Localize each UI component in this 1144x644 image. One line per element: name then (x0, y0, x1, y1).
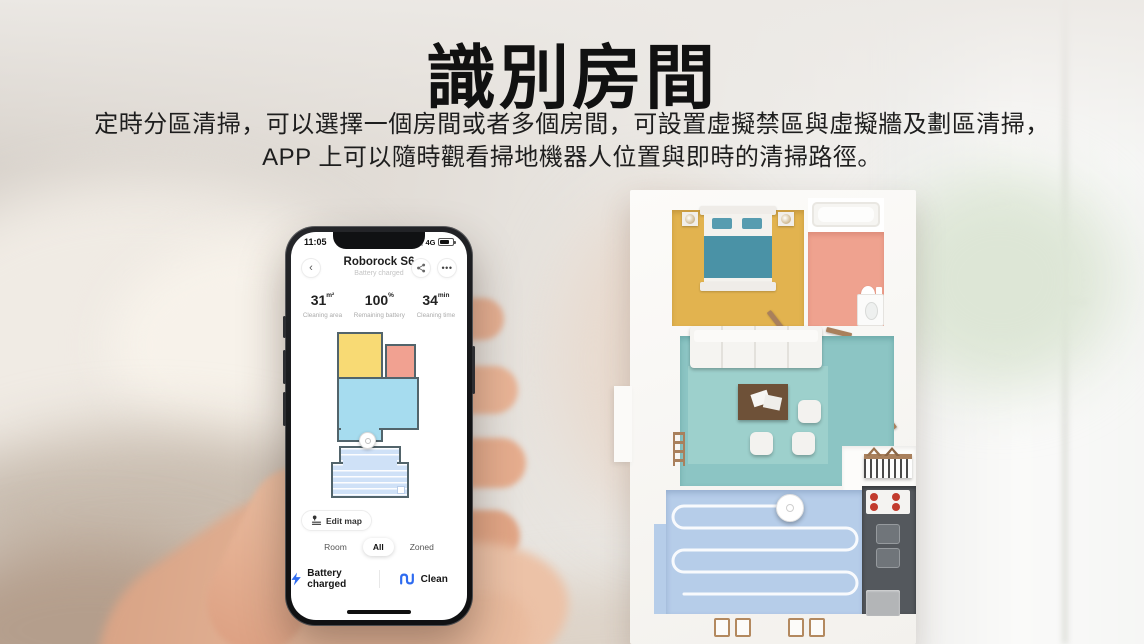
edit-map-icon (311, 515, 322, 526)
clean-button[interactable]: Clean (380, 566, 468, 592)
network-label: 4G (425, 238, 435, 247)
stat-unit: % (388, 292, 394, 299)
tab-all[interactable]: All (363, 538, 394, 556)
floor-plan-illustration (630, 190, 916, 644)
phone-volume-up (283, 350, 286, 384)
lightning-icon (291, 572, 301, 586)
plan-stove (866, 490, 910, 514)
phone-mute-switch (283, 316, 286, 338)
plan-nightstand-right (778, 212, 794, 226)
plan-bathtub (812, 202, 880, 227)
map-dock-marker (397, 486, 405, 494)
app-header: ‹ Roborock S6 Battery charged ••• (291, 256, 467, 288)
page-subtitle: 定時分區清掃，可以選擇一個房間或者多個房間，可設置虛擬禁區與虛擬牆及劃區清掃， … (0, 108, 1144, 174)
battery-status: Battery charged (291, 566, 379, 592)
phone-volume-down (283, 392, 286, 426)
bottom-action-bar: Battery charged Clean (291, 566, 467, 592)
home-indicator[interactable] (347, 610, 411, 614)
edit-map-label: Edit map (326, 516, 362, 526)
plan-pouf (750, 432, 773, 455)
plan-wall-nook (614, 386, 632, 462)
cleaning-path (666, 490, 864, 614)
phone-screen: 11:05 4G ‹ Roborock S6 Battery charged •… (291, 232, 467, 620)
edit-map-button[interactable]: Edit map (301, 510, 372, 531)
robot-map[interactable] (295, 324, 463, 506)
plan-bathroom (808, 198, 884, 326)
map-robot-marker (359, 432, 376, 449)
stat-value: 100 (365, 292, 388, 308)
map-room-yellow[interactable] (337, 332, 383, 379)
battery-status-label: Battery charged (307, 568, 378, 590)
tab-zoned[interactable]: Zoned (410, 542, 434, 552)
phone-notch (333, 232, 425, 249)
plan-coffee-table (738, 384, 788, 420)
stat-unit: m² (326, 292, 334, 299)
map-room-seam (341, 424, 379, 432)
plan-chairs-right (788, 618, 826, 638)
plan-ladder-decor (673, 432, 685, 466)
map-room-blue[interactable] (337, 377, 419, 430)
plan-pouf (792, 432, 815, 455)
stat-label: Remaining battery (354, 312, 405, 319)
stat-remaining-battery: 100% Remaining battery (354, 292, 405, 319)
plan-chairs-left (714, 618, 752, 638)
status-time: 11:05 (304, 237, 327, 247)
subtitle-line-2: APP 上可以隨時觀看掃地機器人位置與即時的清掃路徑。 (262, 144, 882, 171)
battery-icon (438, 238, 454, 246)
tab-room[interactable]: Room (324, 542, 347, 552)
plan-bathroom-floor (808, 232, 884, 326)
share-icon (416, 263, 426, 273)
plan-bedroom (672, 210, 804, 326)
plan-pouf (798, 400, 821, 423)
plan-sink (857, 294, 884, 326)
plan-sofa (690, 326, 822, 368)
subtitle-line-1: 定時分區清掃，可以選擇一個房間或者多個房間，可設置虛擬禁區與虛擬牆及劃區清掃， (94, 111, 1050, 138)
more-button[interactable]: ••• (437, 258, 457, 278)
phone-mockup: 11:05 4G ‹ Roborock S6 Battery charged •… (285, 226, 473, 626)
stat-cleaning-area: 31m² Cleaning area (303, 292, 342, 319)
plan-bed (704, 206, 772, 292)
plan-kitchen-sink (876, 548, 900, 568)
clean-path-icon (399, 572, 415, 586)
map-room-pink[interactable] (385, 344, 416, 379)
stat-value: 34 (422, 292, 438, 308)
phone-power-button (472, 346, 475, 394)
cleaning-stats: 31m² Cleaning area 100% Remaining batter… (291, 292, 467, 319)
plan-nightstand-left (682, 212, 698, 226)
map-mode-tabs: Room All Zoned (291, 538, 467, 556)
stat-label: Cleaning time (417, 312, 456, 319)
plan-shoe-rack (864, 454, 912, 478)
plan-appliance (866, 590, 900, 616)
clean-button-label: Clean (421, 574, 448, 585)
plan-kitchen (666, 490, 864, 614)
share-button[interactable] (411, 258, 431, 278)
plan-robot-vacuum (776, 494, 804, 522)
stat-unit: min (438, 292, 450, 299)
map-room-seam (343, 460, 397, 466)
stat-label: Cleaning area (303, 312, 342, 319)
stat-value: 31 (311, 292, 327, 308)
plan-lamp (781, 214, 791, 224)
plan-kitchen-sink (876, 524, 900, 544)
back-button[interactable]: ‹ (301, 258, 321, 278)
stat-cleaning-time: 34min Cleaning time (417, 292, 456, 319)
plan-lamp (685, 214, 695, 224)
